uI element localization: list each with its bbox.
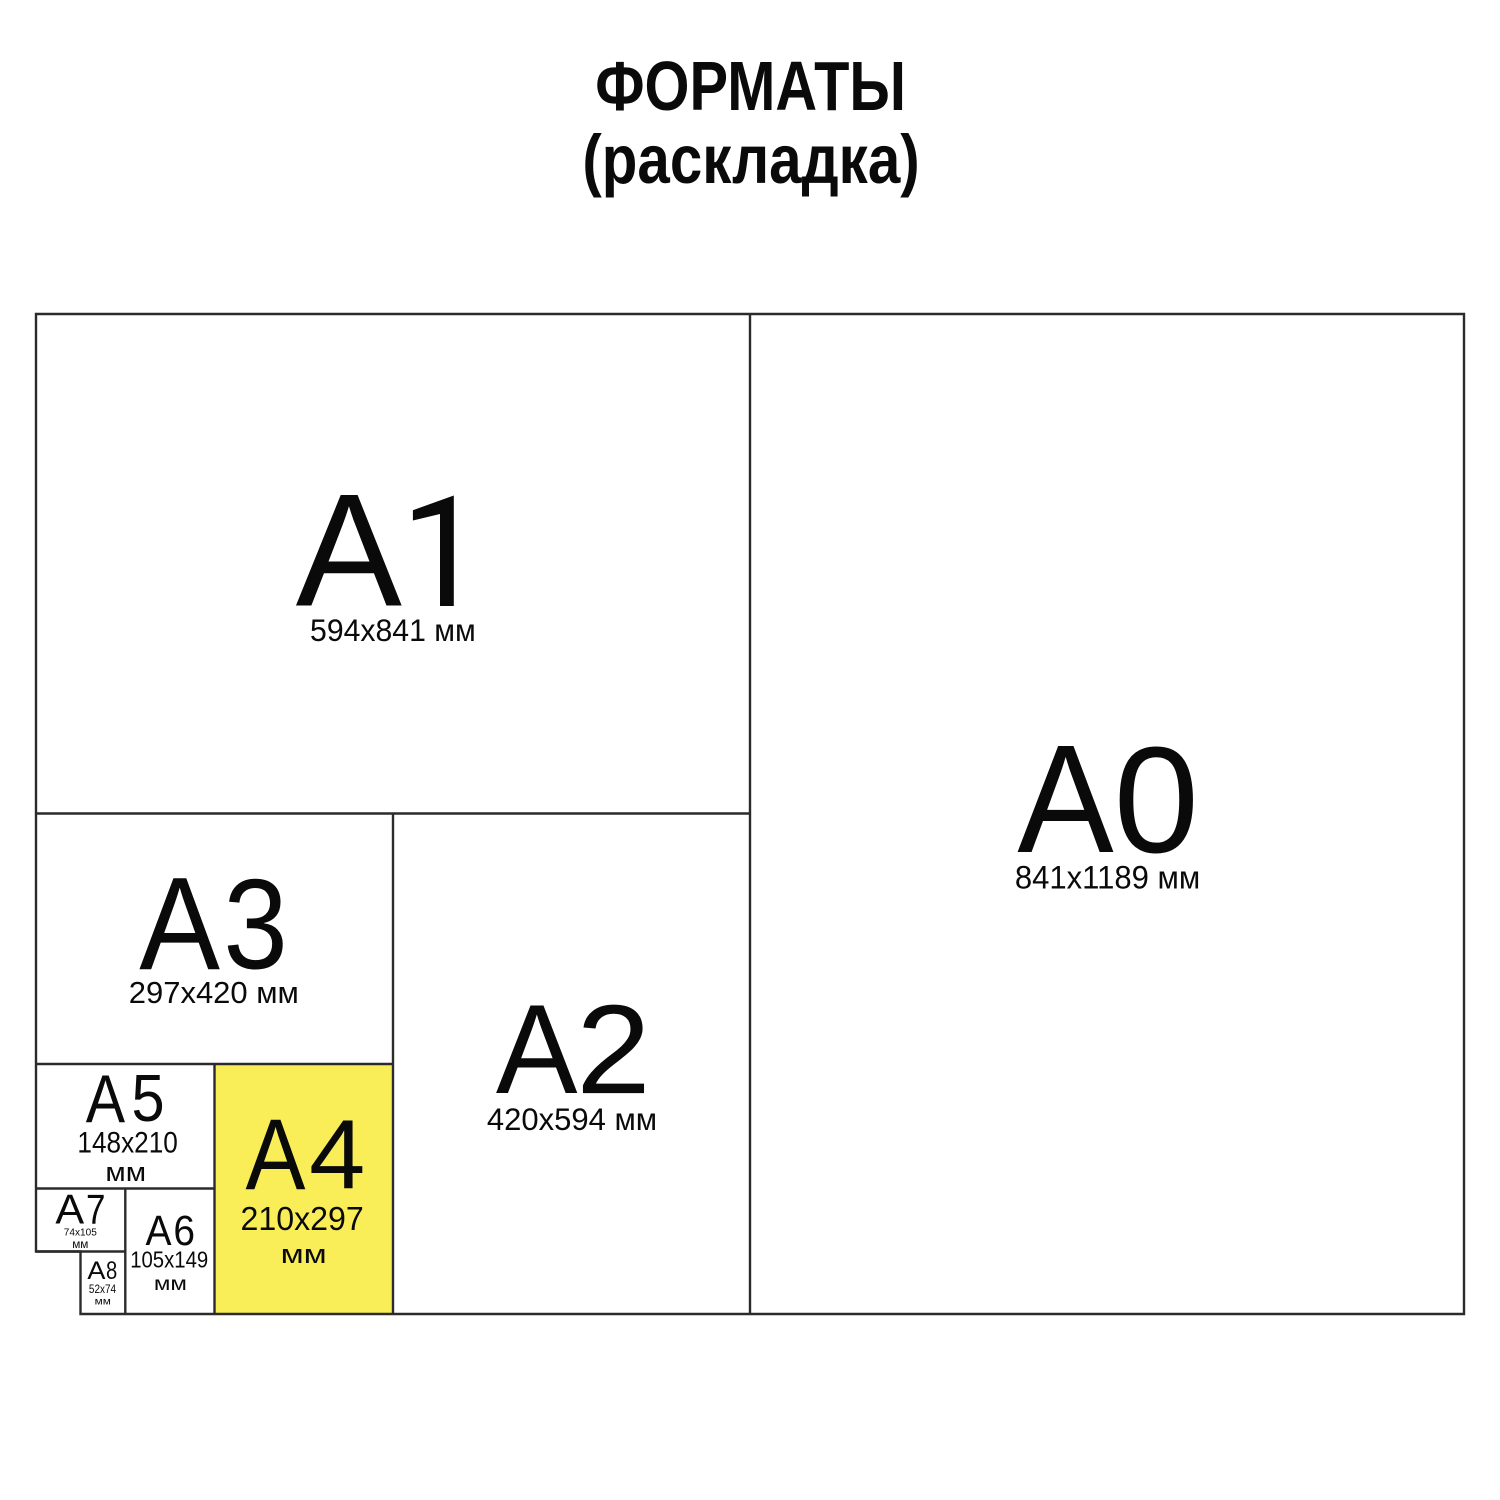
svg-text:297x420 мм: 297x420 мм	[129, 975, 299, 1010]
svg-text:4: 4	[309, 1101, 365, 1210]
svg-text:мм: мм	[95, 1296, 111, 1307]
svg-text:A: A	[87, 1258, 106, 1285]
svg-text:A: A	[246, 1098, 306, 1211]
svg-text:105x149: 105x149	[130, 1246, 208, 1273]
svg-text:7: 7	[86, 1187, 105, 1233]
svg-text:мм: мм	[105, 1158, 146, 1187]
svg-text:5: 5	[132, 1062, 165, 1136]
svg-text:ФОРМАТЫ: ФОРМАТЫ	[595, 47, 906, 125]
svg-text:(раскладка): (раскладка)	[582, 122, 919, 198]
svg-text:мм: мм	[154, 1272, 187, 1294]
svg-text:148x210: 148x210	[77, 1126, 177, 1159]
svg-text:420x594 мм: 420x594 мм	[487, 1102, 657, 1137]
svg-text:594x841 мм: 594x841 мм	[310, 612, 476, 648]
svg-text:8: 8	[106, 1257, 117, 1284]
svg-text:210x297: 210x297	[240, 1199, 363, 1237]
svg-text:мм: мм	[281, 1239, 327, 1269]
svg-text:2: 2	[576, 978, 651, 1120]
svg-text:мм: мм	[72, 1237, 88, 1251]
svg-text:A: A	[496, 979, 578, 1120]
svg-text:A: A	[55, 1186, 85, 1232]
svg-text:841x1189 мм: 841x1189 мм	[1015, 859, 1200, 896]
svg-text:52x74: 52x74	[89, 1283, 116, 1296]
